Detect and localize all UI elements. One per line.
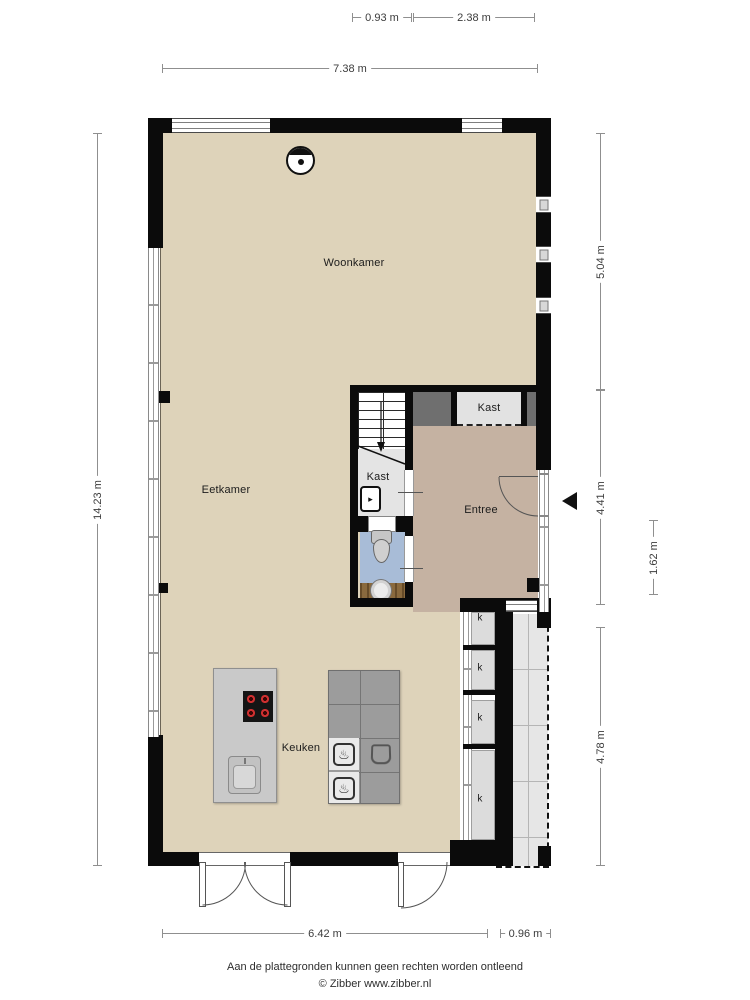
cupboard-label-4: k bbox=[477, 794, 482, 805]
wall-left-upper bbox=[148, 118, 163, 248]
flue-dot bbox=[298, 159, 304, 165]
window-top-2 bbox=[462, 118, 502, 133]
island-sink bbox=[228, 756, 261, 794]
room-label-kast-stairs: Kast bbox=[367, 471, 390, 483]
room-label-keuken: Keuken bbox=[282, 742, 321, 754]
window-wall-entree-right bbox=[539, 470, 549, 612]
cupboard-label-1: k bbox=[477, 613, 482, 624]
dimension-right-upper: 5.04 m bbox=[594, 133, 607, 390]
french-door-arc-right bbox=[245, 862, 288, 905]
dimension-bottom-main: 6.42 m bbox=[162, 927, 488, 940]
floor-plan-page: ▸ ♨ ♨ bbox=[0, 0, 750, 1000]
window-entree-bottom bbox=[506, 600, 537, 612]
flue-icon bbox=[286, 146, 315, 175]
door-leaf-line-entrance bbox=[499, 476, 538, 477]
terrace-post-top bbox=[537, 612, 551, 628]
door-leaf-line-wc bbox=[400, 568, 423, 569]
terrace-tiles bbox=[513, 614, 548, 866]
dimension-left-total: 14.23 m bbox=[91, 133, 104, 866]
door-opening-single bbox=[398, 852, 450, 866]
cupboard-cell-3 bbox=[471, 700, 495, 744]
door-frame-bar bbox=[539, 473, 549, 475]
burner-icon bbox=[260, 694, 270, 704]
wall-core-left bbox=[350, 385, 358, 607]
dimension-bottom-right: 0.96 m bbox=[500, 927, 551, 940]
wall-cupboard-column bbox=[495, 608, 513, 866]
wall-core-top bbox=[350, 385, 538, 392]
window-right-small-2 bbox=[536, 246, 551, 263]
door-leaf-single bbox=[398, 862, 404, 907]
burner-icon bbox=[246, 708, 256, 718]
terrace-dashed-edge-bottom bbox=[496, 866, 549, 868]
door-opening-french bbox=[199, 852, 290, 866]
window-right-small-1 bbox=[536, 196, 551, 213]
room-label-entree: Entree bbox=[464, 504, 498, 516]
door-frame-bar bbox=[539, 515, 549, 517]
cupboard-cell-2 bbox=[471, 650, 495, 690]
footer-disclaimer: Aan de plattegronden kunnen geen rechten… bbox=[0, 961, 750, 973]
dimension-top-right: 2.38 m bbox=[413, 11, 535, 24]
dimension-top-left: 0.93 m bbox=[352, 11, 412, 24]
dimension-right-middle: 4.41 m bbox=[594, 390, 607, 605]
wall-core-bottom bbox=[350, 598, 413, 607]
terrace-post-bottom bbox=[538, 846, 551, 866]
dimension-top-total: 7.38 m bbox=[162, 62, 538, 75]
room-label-woonkamer: Woonkamer bbox=[324, 257, 385, 269]
cupboard-divider-wall-2 bbox=[463, 690, 495, 695]
flue-cap bbox=[286, 146, 315, 155]
niche-dark-left bbox=[413, 392, 451, 426]
room-label-kast-upper: Kast bbox=[478, 402, 501, 414]
mechanical-unit-icon: ▸ bbox=[360, 486, 381, 512]
cupboard-label-3: k bbox=[477, 713, 482, 724]
entrance-arrow-icon bbox=[562, 492, 577, 510]
cupboard-divider-wall-3 bbox=[463, 744, 495, 749]
oven-icon: ♨ bbox=[333, 743, 355, 766]
terrace-dashed-edge-right bbox=[547, 616, 549, 868]
door-leaf-line-closet bbox=[398, 492, 423, 493]
cupboard-cell-1 bbox=[471, 612, 495, 645]
door-leaf-french-left bbox=[199, 862, 206, 907]
single-door-arc bbox=[401, 862, 447, 908]
burner-icon bbox=[246, 694, 256, 704]
cupboard-label-2: k bbox=[477, 663, 482, 674]
cooktop bbox=[243, 691, 273, 722]
dimension-right-lower: 4.78 m bbox=[594, 627, 607, 866]
dimension-right-inner: 1.62 m bbox=[647, 520, 660, 595]
footer-credit: © Zibber www.zibber.nl bbox=[0, 978, 750, 990]
cupboard-cell-4 bbox=[471, 750, 495, 840]
burner-icon bbox=[260, 708, 270, 718]
window-right-small-3 bbox=[536, 297, 551, 314]
wall-bottom-right bbox=[450, 840, 495, 866]
sink-basin-icon bbox=[371, 744, 392, 764]
door-closet-under-stairs bbox=[404, 470, 414, 516]
french-door-arc-left bbox=[203, 862, 246, 905]
cupboard-divider-wall-1 bbox=[463, 645, 495, 650]
stairs bbox=[358, 392, 406, 449]
door-leaf-french-right bbox=[284, 862, 291, 907]
wall-left-lower bbox=[148, 735, 163, 866]
door-wc bbox=[404, 536, 414, 582]
window-top-1 bbox=[172, 118, 270, 133]
oven-icon: ♨ bbox=[333, 777, 355, 800]
window-wall-left bbox=[148, 248, 159, 737]
wall-right bbox=[536, 118, 551, 470]
room-label-eetkamer: Eetkamer bbox=[202, 484, 251, 496]
